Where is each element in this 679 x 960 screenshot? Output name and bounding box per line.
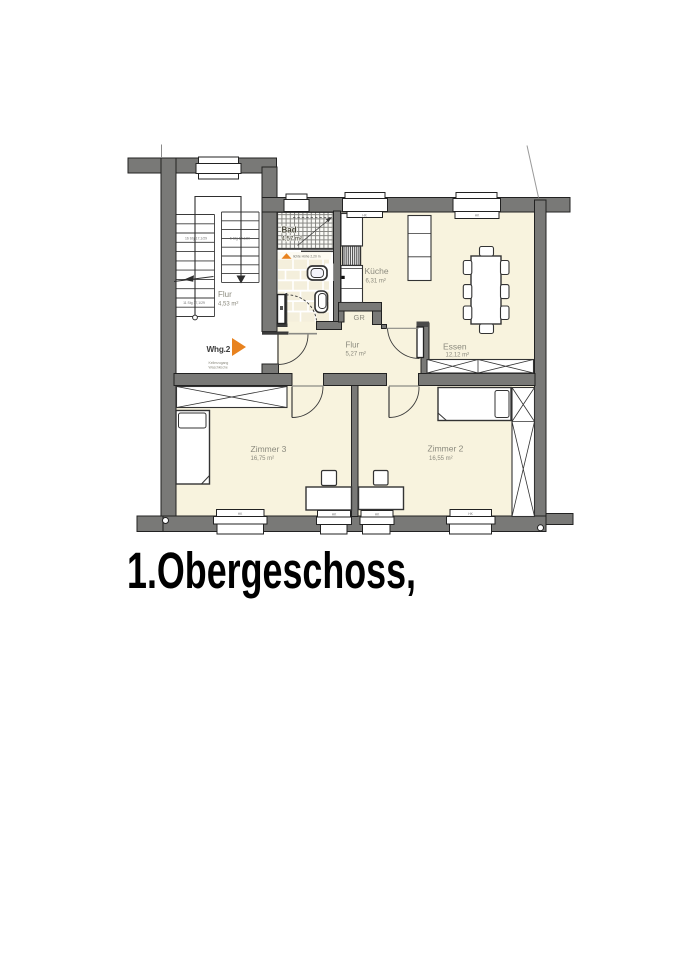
svg-text:Waschküche: Waschküche	[209, 366, 228, 370]
svg-text:Essen: Essen	[443, 342, 467, 352]
svg-text:HK: HK	[375, 513, 380, 517]
svg-text:Flur: Flur	[218, 290, 232, 299]
svg-text:HK: HK	[332, 513, 337, 517]
svg-text:6 Stg 17,1/29: 6 Stg 17,1/29	[230, 237, 250, 241]
svg-text:HK: HK	[468, 512, 473, 516]
svg-text:HK: HK	[362, 214, 367, 218]
svg-text:HK: HK	[475, 214, 480, 218]
svg-text:Whg.2: Whg.2	[207, 345, 231, 354]
svg-text:Kellerzugang: Kellerzugang	[209, 361, 229, 365]
svg-text:GR: GR	[354, 313, 366, 322]
svg-text:16,75 m²: 16,75 m²	[251, 456, 275, 462]
svg-text:16 Stg 17,1/29: 16 Stg 17,1/29	[185, 237, 207, 241]
svg-text:11 Stg 17,1/29: 11 Stg 17,1/29	[183, 301, 205, 305]
svg-text:Bad: Bad	[282, 226, 297, 235]
svg-text:Flur: Flur	[346, 341, 360, 350]
svg-text:6,31 m²: 6,31 m²	[366, 279, 386, 285]
svg-text:1.Obergeschoss,: 1.Obergeschoss,	[127, 542, 416, 599]
svg-text:16,55 m²: 16,55 m²	[429, 456, 453, 462]
svg-text:Küche: Küche	[365, 266, 389, 276]
svg-text:12,12 m²: 12,12 m²	[446, 353, 470, 359]
svg-text:5,27 m²: 5,27 m²	[346, 352, 366, 358]
svg-text:HK: HK	[238, 512, 243, 516]
svg-text:4,53 m²: 4,53 m²	[218, 302, 238, 308]
svg-text:Zimmer 2: Zimmer 2	[428, 444, 464, 454]
svg-text:Zimmer 3: Zimmer 3	[251, 444, 287, 454]
svg-text:4,57 m²: 4,57 m²	[282, 237, 302, 243]
svg-text:lichte Höhe 2,20 m: lichte Höhe 2,20 m	[293, 255, 321, 259]
